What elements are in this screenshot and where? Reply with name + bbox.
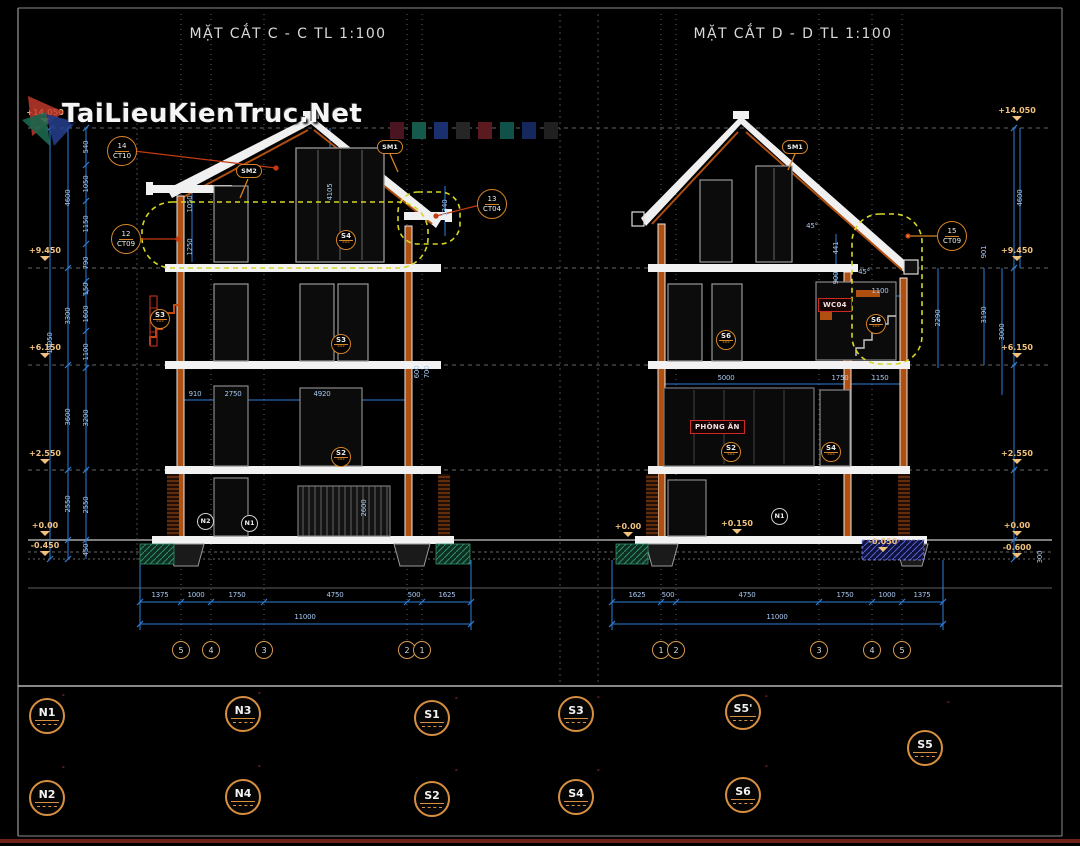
note-lines-s6 bbox=[765, 762, 768, 771]
dim-label: 901 bbox=[980, 246, 988, 259]
note-lines-s3 bbox=[597, 693, 600, 702]
note-bubble-n3: N3 bbox=[225, 696, 261, 732]
dim-label: 11000 bbox=[294, 613, 315, 621]
callout-ref: CT09 bbox=[117, 240, 135, 249]
dim-label: 5000 bbox=[717, 374, 734, 382]
dim-label: 4600 bbox=[64, 189, 72, 206]
grid-bubble: 1 bbox=[413, 641, 431, 659]
floor-mark: S6 bbox=[716, 330, 736, 350]
callout-number: 15 bbox=[945, 227, 960, 237]
dim-label: 3600 bbox=[64, 408, 72, 425]
dim-label: 1050 bbox=[82, 175, 90, 192]
dim-label: 1000 bbox=[878, 591, 895, 599]
note-lines-n3 bbox=[258, 689, 261, 698]
dim-label: 3190 bbox=[980, 306, 988, 323]
floor-mark: S2 bbox=[331, 447, 351, 467]
dim-label: 1600 bbox=[82, 305, 90, 322]
callout-sm2: SM2 bbox=[236, 164, 262, 178]
elevation-label: +0.00 bbox=[22, 521, 68, 536]
angle-label: 45° bbox=[858, 268, 870, 276]
elevation-label: +14.050 bbox=[994, 106, 1040, 121]
callout-ct10: 14 CT10 bbox=[107, 136, 137, 166]
elevation-label: +9.450 bbox=[994, 246, 1040, 261]
note-bubble-n1: N1 bbox=[29, 698, 65, 734]
grid-bubble: 2 bbox=[667, 641, 685, 659]
dim-label: 790 bbox=[82, 257, 90, 270]
floor-mark: S4 bbox=[821, 442, 841, 462]
note-bubble-s6: S6 bbox=[725, 777, 761, 813]
callout-ref: CT09 bbox=[943, 237, 961, 246]
grid-bubble: 3 bbox=[255, 641, 273, 659]
elevation-label: +0.00 bbox=[994, 521, 1040, 536]
dim-label: 1625 bbox=[628, 591, 645, 599]
dim-label: 600 bbox=[413, 366, 421, 379]
note-bubble-s5p: S5' bbox=[725, 694, 761, 730]
base-mark: N1 bbox=[241, 515, 258, 532]
dim-label: 2600 bbox=[360, 499, 368, 516]
watermark-chips bbox=[390, 122, 558, 139]
callout-sm1: SM1 bbox=[377, 140, 403, 154]
dim-label: 1000 bbox=[187, 591, 204, 599]
dim-label: 1150 bbox=[82, 215, 90, 232]
floor-mark: S3 bbox=[331, 334, 351, 354]
callout-ct04: 13 CT04 bbox=[477, 189, 507, 219]
dim-label: 4600 bbox=[1016, 189, 1024, 206]
note-bubble-s3: S3 bbox=[558, 696, 594, 732]
dim-label: 3000 bbox=[998, 323, 1006, 340]
dim-label: 4750 bbox=[326, 591, 343, 599]
callout-sm1: SM1 bbox=[782, 140, 808, 154]
note-lines-s5 bbox=[947, 698, 950, 707]
callout-ct09b: 15 CT09 bbox=[937, 221, 967, 251]
dim-label: 4105 bbox=[326, 183, 334, 200]
elevation-label: -0.450 bbox=[22, 541, 68, 556]
angle-label: 45° bbox=[806, 222, 818, 230]
dim-label: 1100 bbox=[82, 343, 90, 360]
floor-mark: S4 bbox=[336, 230, 356, 250]
note-bubble-s5: S5 bbox=[907, 730, 943, 766]
callout-ref: CT10 bbox=[113, 152, 131, 161]
elevation-label: +0.00 bbox=[605, 522, 651, 537]
dim-label: 1625 bbox=[438, 591, 455, 599]
callout-ct09a: 12 CT09 bbox=[111, 224, 141, 254]
floor-mark: S2 bbox=[721, 442, 741, 462]
dim-label: 1050 bbox=[186, 195, 194, 212]
dim-label: 1250 bbox=[186, 238, 194, 255]
elevation-label: +2.550 bbox=[994, 449, 1040, 464]
elevation-label: +0.150 bbox=[714, 519, 760, 534]
dim-label: 1750 bbox=[228, 591, 245, 599]
revision-clouds bbox=[142, 192, 922, 364]
dim-label: 1375 bbox=[913, 591, 930, 599]
dim-label: 2550 bbox=[64, 495, 72, 512]
grid-bubble: 5 bbox=[172, 641, 190, 659]
sheet-frame bbox=[0, 8, 1080, 841]
elevation-label: +2.550 bbox=[22, 449, 68, 464]
dim-label: 500 bbox=[662, 591, 675, 599]
base-mark: N1 bbox=[771, 508, 788, 525]
note-bubble-s2: S2 bbox=[414, 781, 450, 817]
note-bubble-s4: S4 bbox=[558, 779, 594, 815]
note-lines-n4 bbox=[258, 762, 261, 771]
right-building bbox=[616, 111, 928, 566]
dim-label: 2750 bbox=[224, 390, 241, 398]
note-lines-s2 bbox=[455, 766, 458, 775]
section-title-d: MẶT CẮT D - D TL 1:100 bbox=[694, 26, 893, 42]
grid-bubble: 4 bbox=[202, 641, 220, 659]
note-lines-s1 bbox=[455, 694, 458, 703]
left-building bbox=[140, 111, 470, 566]
note-bubble-n2: N2 bbox=[29, 780, 65, 816]
dim-label: 4920 bbox=[313, 390, 330, 398]
dim-label: 1375 bbox=[151, 591, 168, 599]
note-lines-s5p bbox=[765, 692, 768, 701]
note-lines-n2 bbox=[62, 763, 65, 772]
elevation-label: -0.050 bbox=[860, 537, 906, 552]
dim-label: 1750 bbox=[836, 591, 853, 599]
dim-label: 441 bbox=[832, 242, 840, 255]
grid-bubble: 4 bbox=[863, 641, 881, 659]
dim-label: 1750 bbox=[831, 374, 848, 382]
elevation-label: -0.600 bbox=[994, 543, 1040, 558]
dim-label: 1100 bbox=[871, 287, 888, 295]
dim-label: 2550 bbox=[82, 496, 90, 513]
dim-label: 900 bbox=[832, 272, 840, 285]
drawing-sheet: TaiLieuKienTruc.Net MẶT CẮT C - C TL 1:1… bbox=[0, 0, 1080, 846]
room-label-dining: PHÒNG ĂN bbox=[690, 420, 745, 434]
callout-number: 14 bbox=[115, 142, 130, 152]
section-title-c: MẶT CẮT C - C TL 1:100 bbox=[190, 26, 387, 42]
dim-label: 2290 bbox=[934, 309, 942, 326]
base-mark: N2 bbox=[197, 513, 214, 530]
callout-number: 12 bbox=[119, 230, 134, 240]
dim-label: 1340 bbox=[441, 199, 449, 216]
elevation-label: +6.150 bbox=[994, 343, 1040, 358]
note-bubble-n4: N4 bbox=[225, 779, 261, 815]
dim-label: 11000 bbox=[766, 613, 787, 621]
floor-mark: S3 bbox=[150, 309, 170, 329]
dim-label: 4750 bbox=[738, 591, 755, 599]
note-bubble-s1: S1 bbox=[414, 700, 450, 736]
elevation-label: +9.450 bbox=[22, 246, 68, 261]
callout-ref: CT04 bbox=[483, 205, 501, 214]
dim-label: 700 bbox=[423, 366, 431, 379]
dim-label: 3200 bbox=[82, 409, 90, 426]
dim-label: 1150 bbox=[871, 374, 888, 382]
floor-mark: S6 bbox=[866, 314, 886, 334]
dim-label: 150 bbox=[82, 283, 90, 296]
watermark-text: TaiLieuKienTruc.Net bbox=[62, 99, 363, 129]
dim-label: 540 bbox=[82, 141, 90, 154]
dim-label: 3300 bbox=[64, 307, 72, 324]
grid-bubble: 3 bbox=[810, 641, 828, 659]
dim-label: 910 bbox=[189, 390, 202, 398]
note-lines-s4 bbox=[597, 766, 600, 775]
dim-label: 450 bbox=[82, 544, 90, 557]
room-label-wc: WC04 bbox=[818, 298, 852, 312]
grid-bubble: 5 bbox=[893, 641, 911, 659]
elevation-label: +6.150 bbox=[22, 343, 68, 358]
dim-label: 500 bbox=[408, 591, 421, 599]
callout-number: 13 bbox=[485, 195, 500, 205]
note-lines-n1 bbox=[62, 691, 65, 700]
